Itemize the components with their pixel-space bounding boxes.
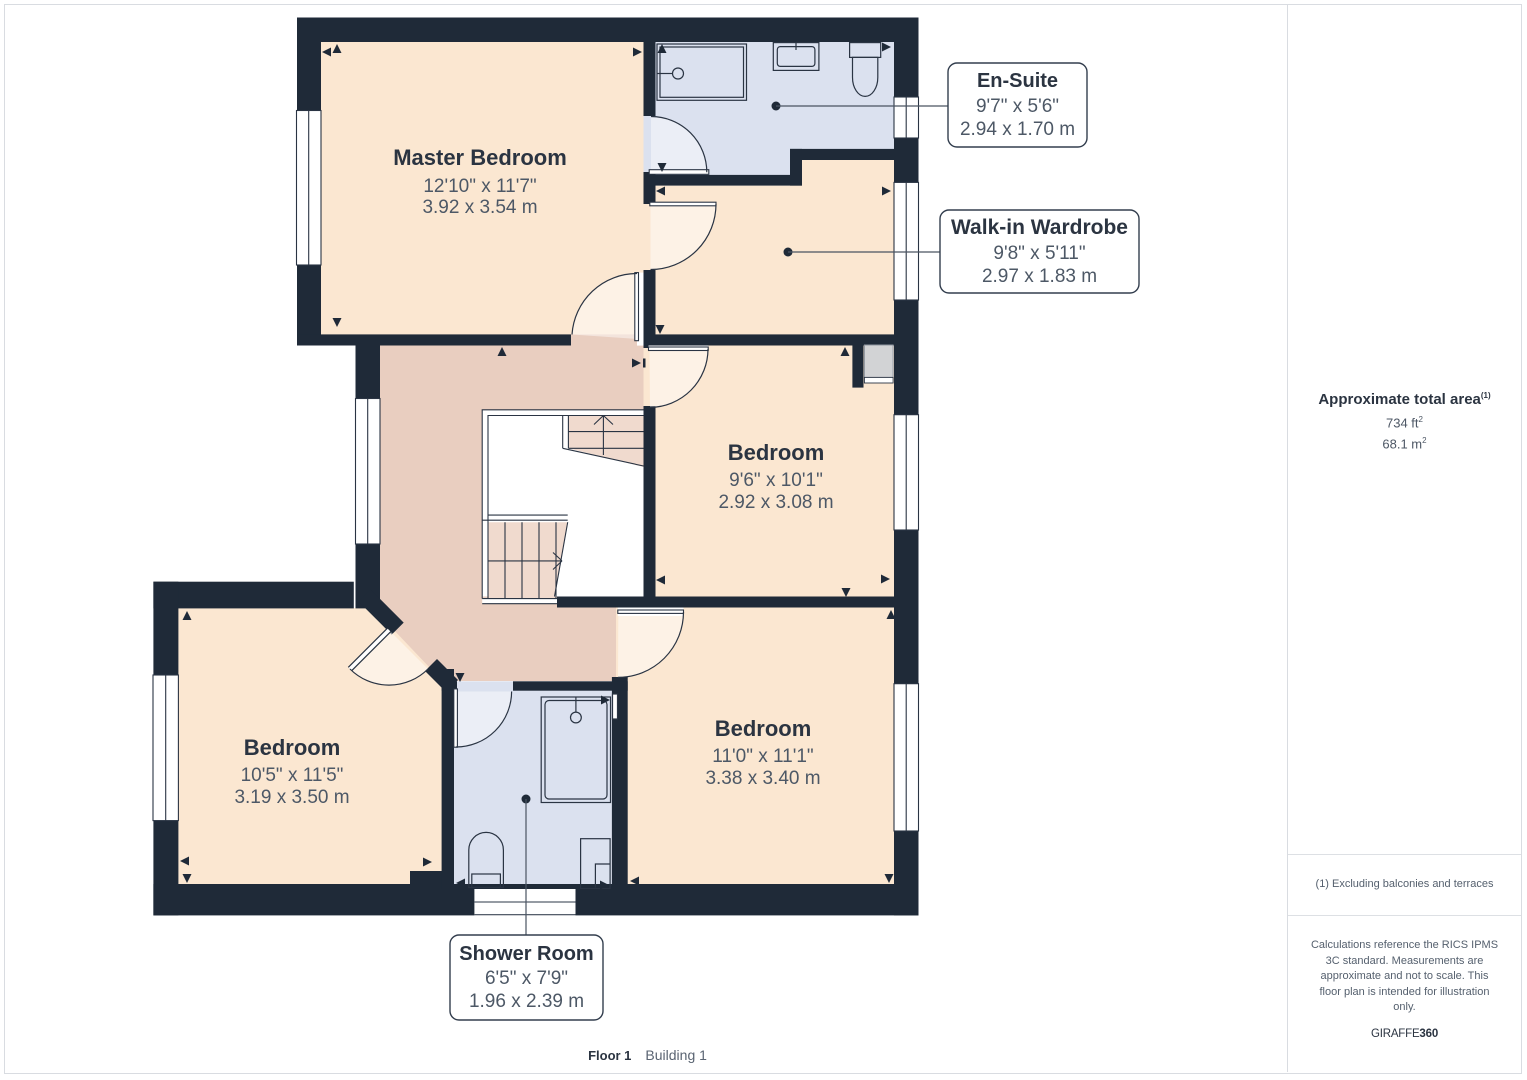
svg-text:Bedroom: Bedroom bbox=[728, 440, 825, 465]
svg-text:Bedroom: Bedroom bbox=[244, 735, 341, 760]
svg-text:Walk-in Wardrobe: Walk-in Wardrobe bbox=[951, 216, 1128, 239]
svg-text:En-Suite: En-Suite bbox=[977, 70, 1058, 92]
svg-text:9'7" x 5'6": 9'7" x 5'6" bbox=[976, 96, 1059, 117]
svg-text:2.94 x 1.70 m: 2.94 x 1.70 m bbox=[960, 119, 1075, 140]
svg-text:Shower Room: Shower Room bbox=[459, 943, 593, 965]
svg-text:3.19 x 3.50 m: 3.19 x 3.50 m bbox=[234, 787, 349, 808]
svg-text:6'5" x 7'9": 6'5" x 7'9" bbox=[485, 968, 568, 989]
svg-text:2.97 x 1.83 m: 2.97 x 1.83 m bbox=[982, 266, 1097, 287]
svg-text:1.96 x 2.39 m: 1.96 x 2.39 m bbox=[469, 991, 584, 1012]
svg-text:2.92 x 3.08 m: 2.92 x 3.08 m bbox=[718, 492, 833, 513]
svg-text:9'8" x 5'11": 9'8" x 5'11" bbox=[993, 243, 1085, 264]
svg-text:Bedroom: Bedroom bbox=[715, 716, 812, 741]
svg-text:3.38 x 3.40 m: 3.38 x 3.40 m bbox=[705, 768, 820, 789]
svg-text:Master Bedroom: Master Bedroom bbox=[393, 145, 567, 170]
svg-text:10'5" x 11'5": 10'5" x 11'5" bbox=[241, 765, 344, 786]
svg-text:9'6" x 10'1": 9'6" x 10'1" bbox=[729, 470, 823, 491]
svg-text:12'10" x 11'7": 12'10" x 11'7" bbox=[423, 176, 536, 197]
svg-text:11'0" x 11'1": 11'0" x 11'1" bbox=[712, 746, 813, 767]
svg-text:3.92 x 3.54 m: 3.92 x 3.54 m bbox=[422, 197, 537, 218]
